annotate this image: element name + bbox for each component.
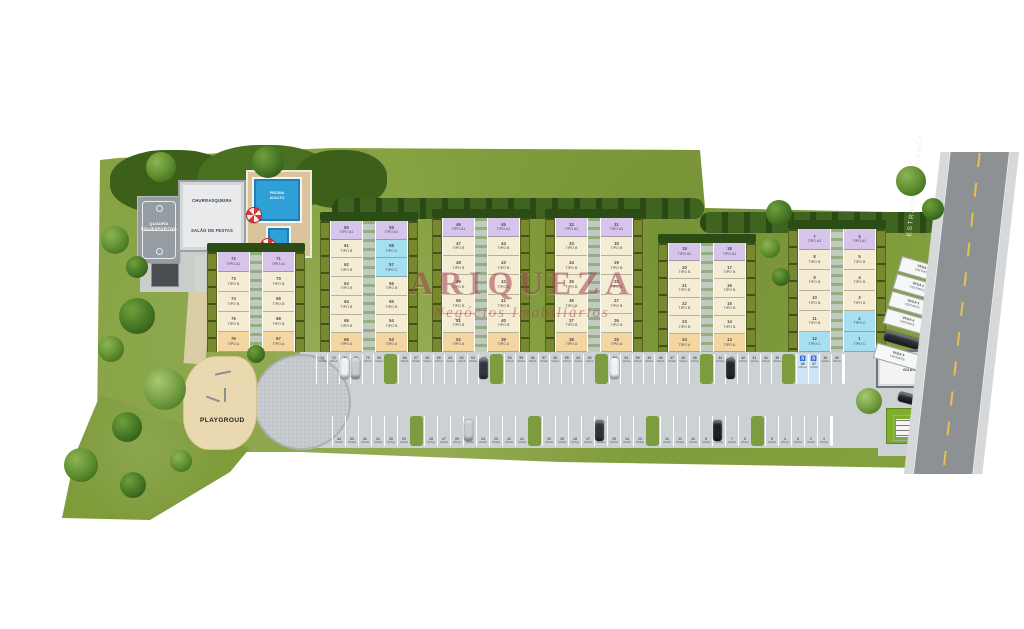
unit: 40TIPO B bbox=[488, 314, 519, 333]
space-word: VAGA bbox=[645, 360, 653, 364]
space-word: VAGA bbox=[412, 360, 420, 364]
parking-island bbox=[646, 416, 659, 446]
space-word: VAGA bbox=[728, 441, 736, 445]
unit: 7TIPO A1 bbox=[799, 229, 830, 250]
unit-tipo: TIPO B bbox=[453, 246, 465, 250]
unit-tipo: TIPO B bbox=[498, 266, 510, 270]
parking-space: 27VAGA bbox=[437, 416, 450, 446]
unit-column-left: 19TIPO A120TIPO B21TIPO B22TIPO B23TIPO … bbox=[668, 243, 701, 352]
unit: 37TIPO B bbox=[556, 314, 587, 333]
space-word: VAGA bbox=[423, 360, 431, 364]
pool-label: PISCINAADULTO bbox=[254, 191, 300, 200]
space-word: VAGA bbox=[529, 360, 537, 364]
tree-icon bbox=[247, 345, 265, 363]
unit-tipo: TIPO B bbox=[228, 282, 240, 286]
stair-core bbox=[701, 243, 713, 352]
roof-strip bbox=[520, 218, 530, 352]
tree-icon bbox=[922, 198, 944, 220]
unit-tipo: TIPO B bbox=[273, 322, 285, 326]
unit-tipo: TIPO B bbox=[566, 304, 578, 308]
unit-tipo: TIPO A bbox=[724, 343, 736, 347]
unit: 14TIPO B bbox=[714, 316, 745, 334]
unit-column-right: 59TIPO A158TIPO C57TIPO C56TIPO B55TIPO … bbox=[375, 221, 408, 352]
space-word: VAGA bbox=[440, 441, 448, 445]
space-word: VAGA bbox=[545, 441, 553, 445]
unit: 11TIPO B bbox=[799, 311, 830, 332]
parking-island bbox=[595, 354, 608, 384]
space-word: VAGA bbox=[739, 360, 747, 364]
parking-space: 18VAGA bbox=[568, 416, 581, 446]
unit: 73TIPO B bbox=[218, 272, 249, 292]
unit-tipo: TIPO C bbox=[386, 249, 398, 253]
unit-tipo: TIPO A bbox=[498, 342, 510, 346]
unit: 75TIPO B bbox=[218, 312, 249, 332]
unit: 2TIPO C bbox=[844, 311, 875, 332]
parking-space: 9VAGA bbox=[699, 416, 712, 446]
unit-tipo: TIPO B bbox=[453, 323, 465, 327]
roof-strip bbox=[408, 221, 418, 352]
parking-space: 50VAGA bbox=[632, 354, 643, 384]
parking-space: 53VAGA bbox=[583, 354, 594, 384]
unit-tipo: TIPO A1 bbox=[340, 230, 354, 234]
unit-column-left: 46TIPO A147TIPO B48TIPO B49TIPO B50TIPO … bbox=[442, 218, 475, 352]
parking-space: 41VAGA bbox=[748, 354, 759, 384]
site-plan: QUADRAPOLIESPORTIVA CHURRASQUEIRA SALÃO … bbox=[0, 0, 1024, 629]
unit-tipo: TIPO B bbox=[854, 301, 866, 305]
umbrella-icon bbox=[246, 207, 262, 223]
space-word: VAGA bbox=[586, 360, 594, 364]
space-word: VAGA bbox=[636, 441, 644, 445]
unit-tipo: TIPO B bbox=[341, 286, 353, 290]
parking-space: 23VAGA bbox=[489, 416, 502, 446]
tree-icon bbox=[120, 472, 146, 498]
tree-icon bbox=[766, 200, 792, 226]
unit: 34TIPO B bbox=[556, 256, 587, 275]
unit-tipo: TIPO A1 bbox=[497, 227, 511, 231]
unit: 1TIPO C bbox=[844, 332, 875, 353]
unit-column-left: 32TIPO A133TIPO B34TIPO B35TIPO B36TIPO … bbox=[555, 218, 588, 352]
unit: 22TIPO B bbox=[669, 298, 700, 316]
parking-island bbox=[410, 416, 423, 446]
tree-icon bbox=[252, 146, 284, 178]
road bbox=[900, 152, 1022, 474]
unit-tipo: TIPO B bbox=[809, 321, 821, 325]
parking-space: 58VAGA bbox=[526, 354, 537, 384]
unit-tipo: TIPO B bbox=[453, 285, 465, 289]
stair-core bbox=[831, 229, 843, 352]
unit: 76TIPO A bbox=[218, 332, 249, 352]
space-word: VAGA bbox=[318, 360, 326, 364]
road-centerline bbox=[938, 152, 984, 474]
parking-island bbox=[751, 416, 764, 446]
parking-space: 69VAGA bbox=[373, 354, 384, 384]
playground-sand bbox=[183, 356, 257, 450]
parking-space: ♿38VAGA bbox=[796, 354, 807, 384]
unit: 43TIPO B bbox=[488, 256, 519, 275]
car-icon bbox=[726, 358, 735, 379]
tree-icon bbox=[119, 298, 155, 334]
parking-space: 74VAGA bbox=[316, 354, 327, 384]
unit-tipo: TIPO B bbox=[809, 280, 821, 284]
unit-tipo: TIPO B bbox=[809, 301, 821, 305]
parking-space: 21VAGA bbox=[515, 416, 528, 446]
space-word: VAGA bbox=[610, 441, 618, 445]
palm-tree-icon bbox=[856, 388, 882, 414]
unit-tipo: TIPO B bbox=[679, 270, 691, 274]
space-word: VAGA bbox=[446, 360, 454, 364]
space-word: VAGA bbox=[833, 360, 841, 364]
parking-space: 66VAGA bbox=[421, 354, 432, 384]
unit-tipo: TIPO A1 bbox=[610, 227, 624, 231]
parking-space: 46VAGA bbox=[677, 354, 688, 384]
parking-island bbox=[384, 354, 397, 384]
unit: 47TIPO B bbox=[443, 237, 474, 256]
unit: 26TIPO B bbox=[601, 314, 632, 333]
car-icon bbox=[351, 358, 360, 379]
space-word: VAGA bbox=[551, 360, 559, 364]
basketball-hoop-icon bbox=[156, 205, 163, 212]
parking-island bbox=[490, 354, 503, 384]
tree-icon bbox=[126, 256, 148, 278]
unit: 44TIPO B bbox=[488, 237, 519, 256]
space-word: VAGA bbox=[427, 441, 435, 445]
sports-court: QUADRAPOLIESPORTIVA bbox=[137, 196, 181, 264]
unit: 64TIPO B bbox=[331, 296, 362, 315]
tree-icon bbox=[170, 450, 192, 472]
space-word: VAGA bbox=[558, 441, 566, 445]
block-2: 19TIPO A120TIPO B21TIPO B22TIPO B23TIPO … bbox=[658, 234, 756, 352]
space-word: VAGA bbox=[768, 441, 776, 445]
parking-space: 62VAGA bbox=[467, 354, 478, 384]
unit: 33TIPO B bbox=[556, 237, 587, 256]
unit-column-right: 18TIPO A117TIPO B16TIPO B15TIPO B14TIPO … bbox=[713, 243, 746, 352]
unit: 10TIPO B bbox=[799, 291, 830, 312]
roof-cap bbox=[207, 243, 305, 252]
unit: 57TIPO C bbox=[376, 258, 407, 277]
space-word: VAGA bbox=[584, 441, 592, 445]
space-word: VAGA bbox=[750, 360, 758, 364]
court-label: QUADRAPOLIESPORTIVA bbox=[138, 221, 180, 231]
unit-column-left: 7TIPO A18TIPO B9TIPO B10TIPO B11TIPO B12… bbox=[798, 229, 831, 352]
block-1: 7TIPO A18TIPO B9TIPO B10TIPO B11TIPO B12… bbox=[788, 220, 886, 352]
block-5: 60TIPO A161TIPO B62TIPO B63TIPO B64TIPO … bbox=[320, 212, 418, 352]
unit-tipo: TIPO A bbox=[273, 342, 285, 346]
unit-column-right: 45TIPO A144TIPO B43TIPO B42TIPO B41TIPO … bbox=[487, 218, 520, 352]
unit-tipo: TIPO B bbox=[453, 266, 465, 270]
unit-tipo: TIPO B bbox=[498, 304, 510, 308]
unit: 69TIPO B bbox=[263, 292, 294, 312]
unit: 31TIPO A1 bbox=[601, 218, 632, 237]
unit: 68TIPO B bbox=[263, 312, 294, 332]
unit: 21TIPO B bbox=[669, 279, 700, 297]
unit-column-right: 71TIPO A170TIPO B69TIPO B68TIPO B67TIPO … bbox=[262, 252, 295, 352]
unit: 63TIPO B bbox=[331, 277, 362, 296]
tree-icon bbox=[772, 268, 790, 286]
unit: 18TIPO A1 bbox=[714, 243, 745, 261]
roof-cap bbox=[658, 234, 756, 243]
unit-tipo: TIPO B bbox=[724, 325, 736, 329]
parking-space: 19VAGA bbox=[555, 416, 568, 446]
roof-strip bbox=[788, 229, 798, 352]
unit-tipo: TIPO A1 bbox=[452, 227, 466, 231]
parking-space: 55VAGA bbox=[561, 354, 572, 384]
space-word: VAGA bbox=[773, 360, 781, 364]
roof-strip bbox=[658, 243, 668, 352]
unit: 49TIPO B bbox=[443, 275, 474, 294]
unit-tipo: TIPO B bbox=[724, 270, 736, 274]
unit: 70TIPO B bbox=[263, 272, 294, 292]
unit-tipo: TIPO B bbox=[341, 268, 353, 272]
space-word: VAGA bbox=[505, 441, 513, 445]
unit-tipo: TIPO B bbox=[611, 266, 623, 270]
unit: 24TIPO A bbox=[669, 334, 700, 352]
space-word: VAGA bbox=[466, 441, 474, 445]
parking-space: 42VAGA bbox=[737, 354, 748, 384]
roof-strip bbox=[746, 243, 756, 352]
unit-tipo: TIPO B bbox=[611, 246, 623, 250]
unit: 39TIPO A bbox=[488, 333, 519, 352]
space-word: VAGA bbox=[634, 360, 642, 364]
road-area bbox=[888, 152, 1024, 474]
unit: 13TIPO A bbox=[714, 334, 745, 352]
tree-icon bbox=[896, 166, 926, 196]
unit-tipo: TIPO B bbox=[724, 306, 736, 310]
car-icon bbox=[340, 358, 349, 379]
bbq-label: CHURRASQUEIRA bbox=[180, 198, 244, 203]
parking-space: 6VAGA bbox=[738, 416, 751, 446]
unit-tipo: TIPO A1 bbox=[272, 262, 286, 266]
parking-island bbox=[782, 354, 795, 384]
space-word: VAGA bbox=[506, 360, 514, 364]
parking-space: ♿37VAGA bbox=[808, 354, 819, 384]
space-word: VAGA bbox=[716, 360, 724, 364]
parking-space: 68VAGA bbox=[398, 354, 409, 384]
space-word: VAGA bbox=[571, 441, 579, 445]
car-icon bbox=[595, 420, 604, 441]
space-word: VAGA bbox=[794, 441, 802, 445]
space-word: VAGA bbox=[668, 360, 676, 364]
roof-strip bbox=[295, 252, 305, 352]
unit: 53TIPO A bbox=[376, 333, 407, 352]
unit-tipo: TIPO B bbox=[386, 324, 398, 328]
parking-space: 34VAGA bbox=[332, 416, 345, 446]
unit-tipo: TIPO B bbox=[498, 323, 510, 327]
parking-space: 22VAGA bbox=[502, 416, 515, 446]
unit-tipo: TIPO B bbox=[386, 305, 398, 309]
space-word: VAGA bbox=[375, 360, 383, 364]
block-3: 32TIPO A133TIPO B34TIPO B35TIPO B36TIPO … bbox=[545, 209, 643, 352]
space-word: VAGA bbox=[330, 360, 338, 364]
parking-space: 33VAGA bbox=[345, 416, 358, 446]
parking-space: 54VAGA bbox=[572, 354, 583, 384]
parking-space: 3VAGA bbox=[791, 416, 804, 446]
space-word: VAGA bbox=[689, 441, 697, 445]
unit-tipo: TIPO A1 bbox=[385, 230, 399, 234]
playground-label: PLAYGROUD bbox=[200, 417, 245, 424]
tree-icon bbox=[760, 238, 780, 258]
space-word: VAGA bbox=[810, 366, 818, 370]
space-word: VAGA bbox=[361, 441, 369, 445]
parking-space: 63VAGA bbox=[455, 354, 466, 384]
space-word: VAGA bbox=[387, 441, 395, 445]
unit: 54TIPO B bbox=[376, 315, 407, 334]
parking-space: 4VAGA bbox=[778, 416, 791, 446]
playground-equipment-icon bbox=[224, 388, 226, 402]
parking-space: 51VAGA bbox=[620, 354, 631, 384]
unit-tipo: TIPO A1 bbox=[723, 252, 737, 256]
space-word: VAGA bbox=[453, 441, 461, 445]
unit-tipo: TIPO C bbox=[854, 321, 866, 325]
parking-space: 65VAGA bbox=[433, 354, 444, 384]
unit-tipo: TIPO A1 bbox=[808, 239, 822, 243]
car-icon bbox=[464, 420, 473, 441]
tree-icon bbox=[144, 368, 186, 410]
roof-strip bbox=[545, 218, 555, 352]
unit: 15TIPO B bbox=[714, 298, 745, 316]
unit: 9TIPO B bbox=[799, 270, 830, 291]
space-word: VAGA bbox=[518, 441, 526, 445]
parking-space: 39VAGA bbox=[771, 354, 782, 384]
unit: 67TIPO A bbox=[263, 332, 294, 352]
unit: 3TIPO B bbox=[844, 291, 875, 312]
unit-tipo: TIPO A1 bbox=[853, 239, 867, 243]
parking-space: 59VAGA bbox=[515, 354, 526, 384]
roof-cap bbox=[320, 212, 418, 221]
parking-space: 31VAGA bbox=[371, 416, 384, 446]
unit-tipo: TIPO B bbox=[566, 246, 578, 250]
unit-column-left: 72TIPO A173TIPO B74TIPO B75TIPO B76TIPO … bbox=[217, 252, 250, 352]
parking-space: 35VAGA bbox=[831, 354, 842, 384]
unit: 71TIPO A1 bbox=[263, 252, 294, 272]
unit-tipo: TIPO B bbox=[228, 302, 240, 306]
parking-space: 26VAGA bbox=[450, 416, 463, 446]
unit-tipo: TIPO B bbox=[679, 325, 691, 329]
unit: 4TIPO B bbox=[844, 270, 875, 291]
space-word: VAGA bbox=[364, 360, 372, 364]
roof-cap bbox=[788, 220, 886, 229]
space-word: VAGA bbox=[492, 441, 500, 445]
tree-icon bbox=[146, 152, 176, 182]
parking-space: 49VAGA bbox=[643, 354, 654, 384]
unit: 12TIPO C bbox=[799, 332, 830, 353]
basketball-hoop-icon bbox=[156, 248, 163, 255]
parking-space: 13VAGA bbox=[633, 416, 646, 446]
parking-space: 5VAGA bbox=[765, 416, 778, 446]
unit: 48TIPO B bbox=[443, 256, 474, 275]
parking-space: 7VAGA bbox=[725, 416, 738, 446]
unit-tipo: TIPO B bbox=[498, 285, 510, 289]
unit: 52TIPO A bbox=[443, 333, 474, 352]
unit-tipo: TIPO A bbox=[386, 342, 398, 346]
parking-space: 11VAGA bbox=[673, 416, 686, 446]
space-word: VAGA bbox=[540, 360, 548, 364]
unit: 60TIPO A1 bbox=[331, 221, 362, 240]
unit: 65TIPO B bbox=[331, 315, 362, 334]
unit: 16TIPO B bbox=[714, 279, 745, 297]
space-word: VAGA bbox=[335, 441, 343, 445]
space-word: VAGA bbox=[401, 360, 409, 364]
space-word: VAGA bbox=[348, 441, 356, 445]
roof-cap bbox=[432, 209, 530, 218]
space-word: VAGA bbox=[663, 441, 671, 445]
unit-tipo: TIPO C bbox=[386, 268, 398, 272]
unit: 6TIPO A1 bbox=[844, 229, 875, 250]
tree-icon bbox=[101, 226, 129, 254]
unit: 32TIPO A1 bbox=[556, 218, 587, 237]
unit: 42TIPO B bbox=[488, 275, 519, 294]
roof-strip bbox=[320, 221, 330, 352]
unit-tipo: TIPO B bbox=[386, 286, 398, 290]
unit: 25TIPO A bbox=[601, 333, 632, 352]
unit-tipo: TIPO B bbox=[341, 305, 353, 309]
unit-tipo: TIPO A bbox=[679, 343, 691, 347]
space-word: VAGA bbox=[458, 360, 466, 364]
parking-space: 64VAGA bbox=[444, 354, 455, 384]
car-icon bbox=[610, 358, 619, 379]
unit: 59TIPO A1 bbox=[376, 221, 407, 240]
space-word: VAGA bbox=[374, 441, 382, 445]
unit-tipo: TIPO B bbox=[724, 288, 736, 292]
parking-space: 29VAGA bbox=[397, 416, 410, 446]
unit-tipo: TIPO B bbox=[566, 266, 578, 270]
unit-tipo: TIPO B bbox=[498, 246, 510, 250]
block-4: 46TIPO A147TIPO B48TIPO B49TIPO B50TIPO … bbox=[432, 209, 530, 352]
unit-tipo: TIPO B bbox=[453, 304, 465, 308]
unit-tipo: TIPO B bbox=[566, 285, 578, 289]
parking-space: 67VAGA bbox=[410, 354, 421, 384]
unit-tipo: TIPO A1 bbox=[565, 227, 579, 231]
unit: 36TIPO B bbox=[556, 295, 587, 314]
tree-icon bbox=[64, 448, 98, 482]
unit: 19TIPO A1 bbox=[669, 243, 700, 261]
unit: 62TIPO B bbox=[331, 258, 362, 277]
space-word: VAGA bbox=[657, 360, 665, 364]
space-word: VAGA bbox=[679, 360, 687, 364]
parking-space: 1VAGA bbox=[817, 416, 830, 446]
unit-tipo: TIPO C bbox=[854, 342, 866, 346]
space-word: VAGA bbox=[479, 441, 487, 445]
parking-space: 14VAGA bbox=[620, 416, 633, 446]
parking-space: 10VAGA bbox=[686, 416, 699, 446]
space-word: VAGA bbox=[435, 360, 443, 364]
parking-island bbox=[842, 354, 845, 384]
unit: 38TIPO A bbox=[556, 333, 587, 352]
space-word: VAGA bbox=[781, 441, 789, 445]
space-word: VAGA bbox=[622, 360, 630, 364]
unit: 58TIPO C bbox=[376, 240, 407, 259]
unit-column-right: 6TIPO A15TIPO B4TIPO B3TIPO B2TIPO C1TIP… bbox=[843, 229, 876, 352]
stair-core bbox=[588, 218, 600, 352]
unit: 41TIPO B bbox=[488, 295, 519, 314]
parking-space: 36VAGA bbox=[819, 354, 830, 384]
unit-tipo: TIPO B bbox=[809, 260, 821, 264]
utility-shed bbox=[151, 263, 179, 287]
unit-tipo: TIPO A bbox=[228, 342, 240, 346]
parking-space: 15VAGA bbox=[607, 416, 620, 446]
unit: 74TIPO B bbox=[218, 292, 249, 312]
stair-core bbox=[250, 252, 262, 352]
space-word: VAGA bbox=[469, 360, 477, 364]
space-word: VAGA bbox=[715, 441, 723, 445]
parking-space: 44VAGA bbox=[714, 354, 725, 384]
unit: 8TIPO B bbox=[799, 250, 830, 271]
car-icon bbox=[713, 420, 722, 441]
roof-strip bbox=[633, 218, 643, 352]
parking-space: 24VAGA bbox=[476, 416, 489, 446]
unit: 5TIPO B bbox=[844, 250, 875, 271]
space-word: VAGA bbox=[574, 360, 582, 364]
space-word: VAGA bbox=[517, 360, 525, 364]
